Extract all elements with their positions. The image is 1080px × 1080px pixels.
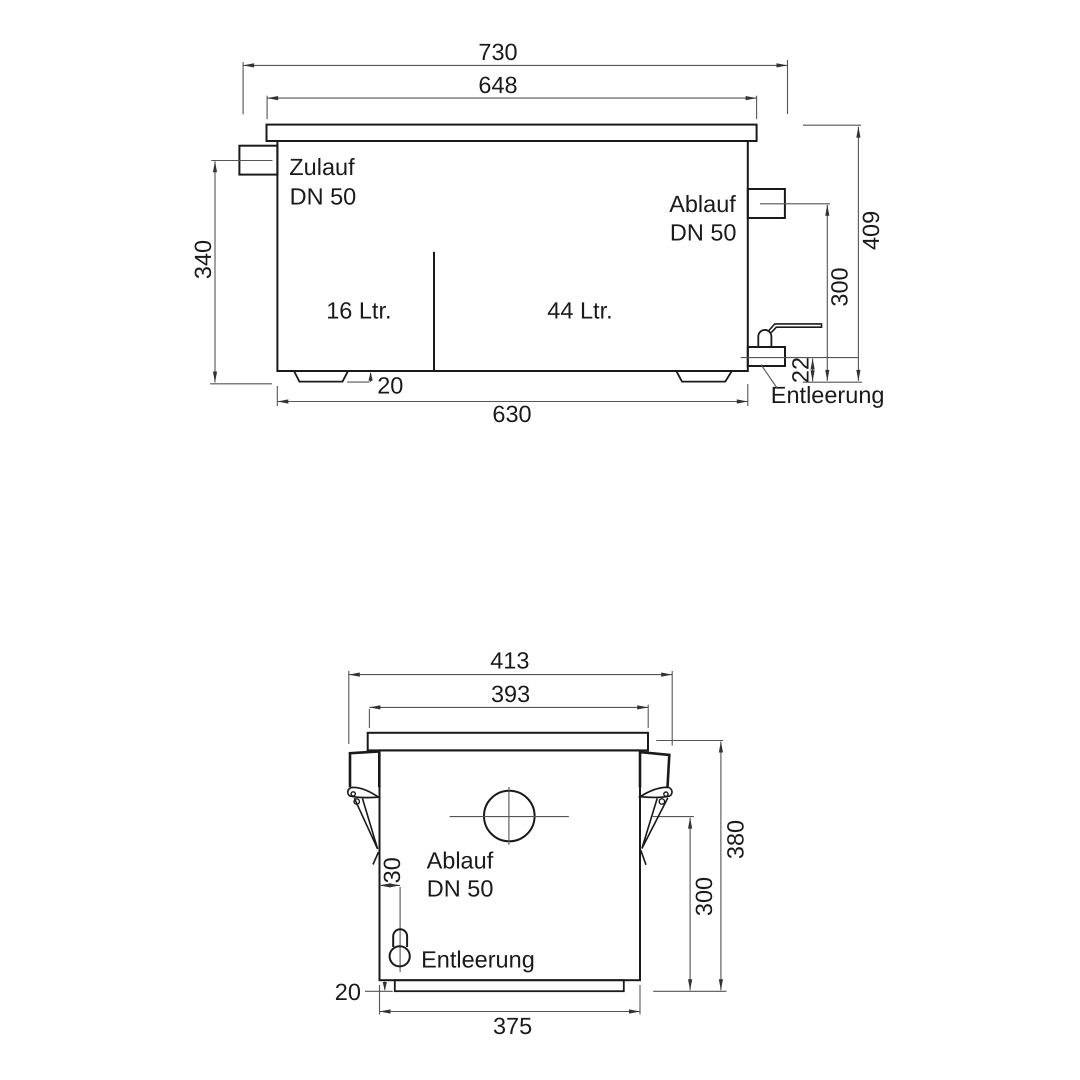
svg-text:DN 50: DN 50 (290, 184, 357, 210)
svg-text:16 Ltr.: 16 Ltr. (326, 297, 391, 323)
svg-text:Entleerung: Entleerung (771, 382, 885, 408)
svg-text:Zulauf: Zulauf (289, 154, 355, 180)
svg-text:300: 300 (691, 877, 717, 916)
svg-text:409: 409 (858, 211, 884, 250)
svg-text:730: 730 (478, 39, 517, 65)
svg-text:Entleerung: Entleerung (421, 947, 535, 973)
svg-text:375: 375 (493, 1013, 532, 1039)
svg-text:DN 50: DN 50 (427, 875, 494, 901)
svg-text:648: 648 (478, 72, 517, 98)
svg-text:393: 393 (491, 681, 530, 707)
svg-text:20: 20 (377, 372, 403, 398)
svg-text:413: 413 (490, 647, 529, 673)
svg-text:30: 30 (379, 857, 405, 883)
svg-text:44 Ltr.: 44 Ltr. (547, 298, 612, 324)
svg-text:Ablauf: Ablauf (669, 191, 736, 217)
svg-text:300: 300 (827, 267, 853, 306)
svg-text:DN 50: DN 50 (670, 220, 737, 246)
svg-text:380: 380 (723, 820, 749, 859)
svg-text:630: 630 (492, 401, 531, 427)
svg-text:Ablauf: Ablauf (427, 848, 494, 874)
svg-text:20: 20 (335, 979, 361, 1005)
svg-text:22: 22 (788, 357, 814, 383)
svg-text:340: 340 (190, 240, 216, 279)
